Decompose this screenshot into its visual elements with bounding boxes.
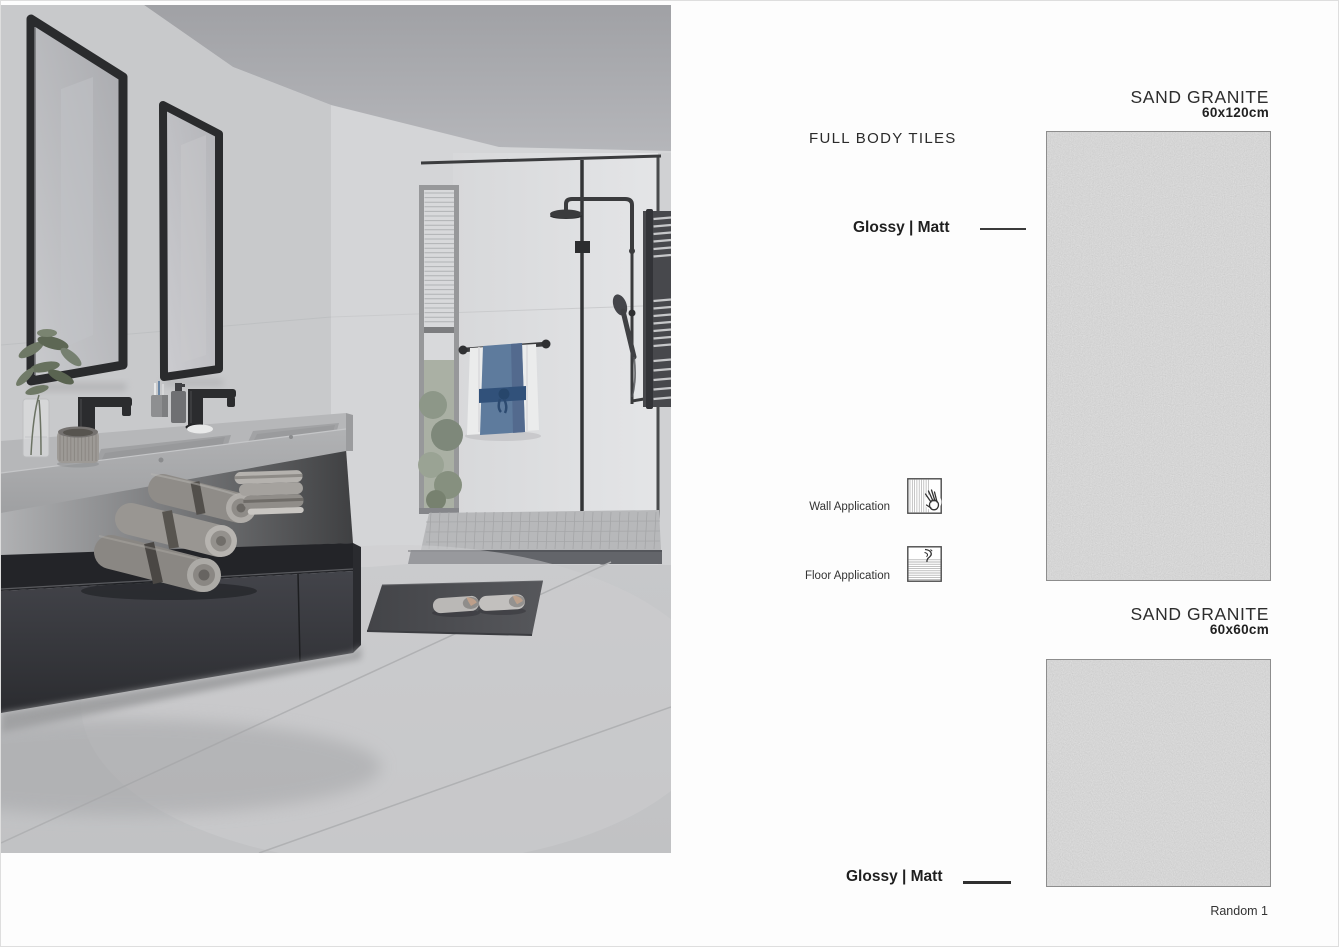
finish-label-2: Glossy | Matt	[846, 868, 943, 886]
finish-label-1: Glossy | Matt	[853, 219, 950, 237]
mirror-right	[163, 105, 223, 386]
bathroom-photo	[1, 5, 671, 853]
wall-application-label: Wall Application	[809, 501, 890, 513]
catalog-page: SAND GRANITE 60x120cm FULL BODY TILES Gl…	[0, 0, 1339, 947]
variant-label: Random 1	[1210, 904, 1268, 918]
product-size-60x120: 60x120cm	[1202, 105, 1269, 120]
window	[418, 185, 463, 514]
finish-rule-1	[980, 228, 1026, 230]
shower-head	[550, 210, 582, 219]
floor-application-label: Floor Application	[805, 570, 890, 582]
floor-application-icon	[907, 546, 942, 582]
ribbed-pot	[57, 427, 99, 468]
collection-title: FULL BODY TILES	[809, 130, 957, 147]
towel-radiator	[643, 209, 671, 409]
tile-swatch-60x60	[1046, 659, 1271, 887]
tile-swatch-60x120	[1046, 131, 1271, 581]
finish-rule-2	[963, 881, 1011, 884]
wall-application-icon	[907, 478, 942, 514]
product-size-60x60: 60x60cm	[1210, 622, 1269, 637]
bath-mat	[367, 581, 543, 635]
